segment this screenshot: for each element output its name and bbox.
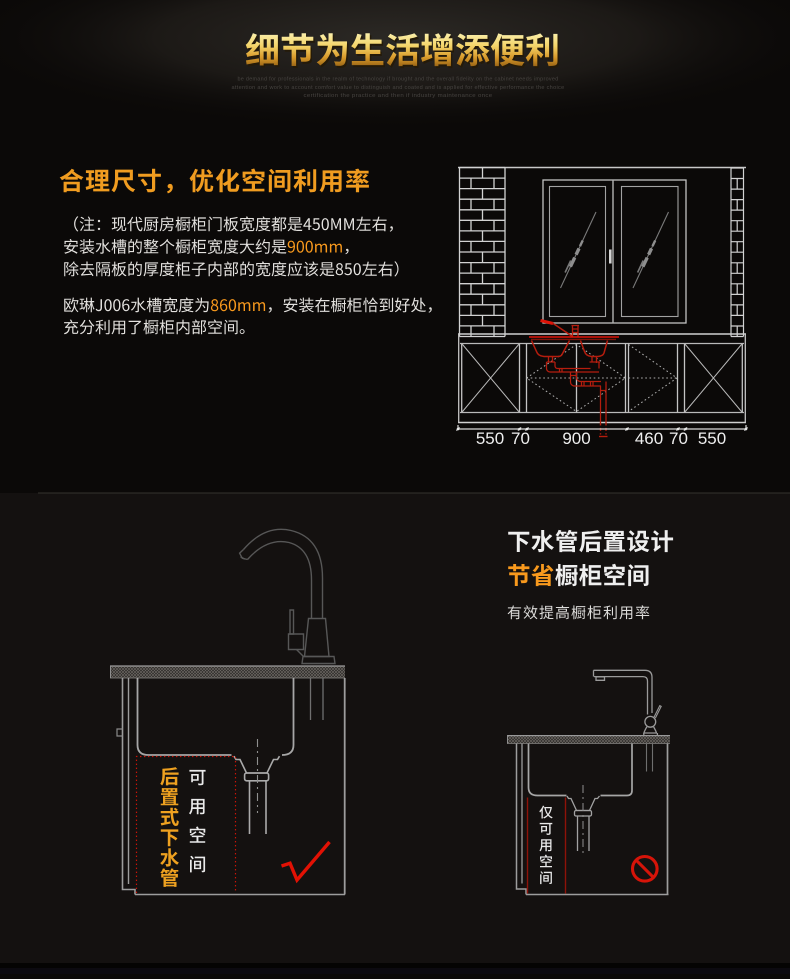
svg-text:900: 900 <box>562 429 590 448</box>
svg-text:certification the practice and: certification the practice and then if i… <box>304 93 493 99</box>
svg-text:attention and work to account: attention and work to account comfort va… <box>232 85 565 91</box>
svg-text:460: 460 <box>635 429 663 448</box>
svg-text:70: 70 <box>511 429 530 448</box>
svg-text:70: 70 <box>669 429 688 448</box>
svg-text:550: 550 <box>698 429 726 448</box>
svg-text:be demand for professionals in: be demand for professionals in the realm… <box>238 77 559 83</box>
svg-text:550: 550 <box>476 429 504 448</box>
